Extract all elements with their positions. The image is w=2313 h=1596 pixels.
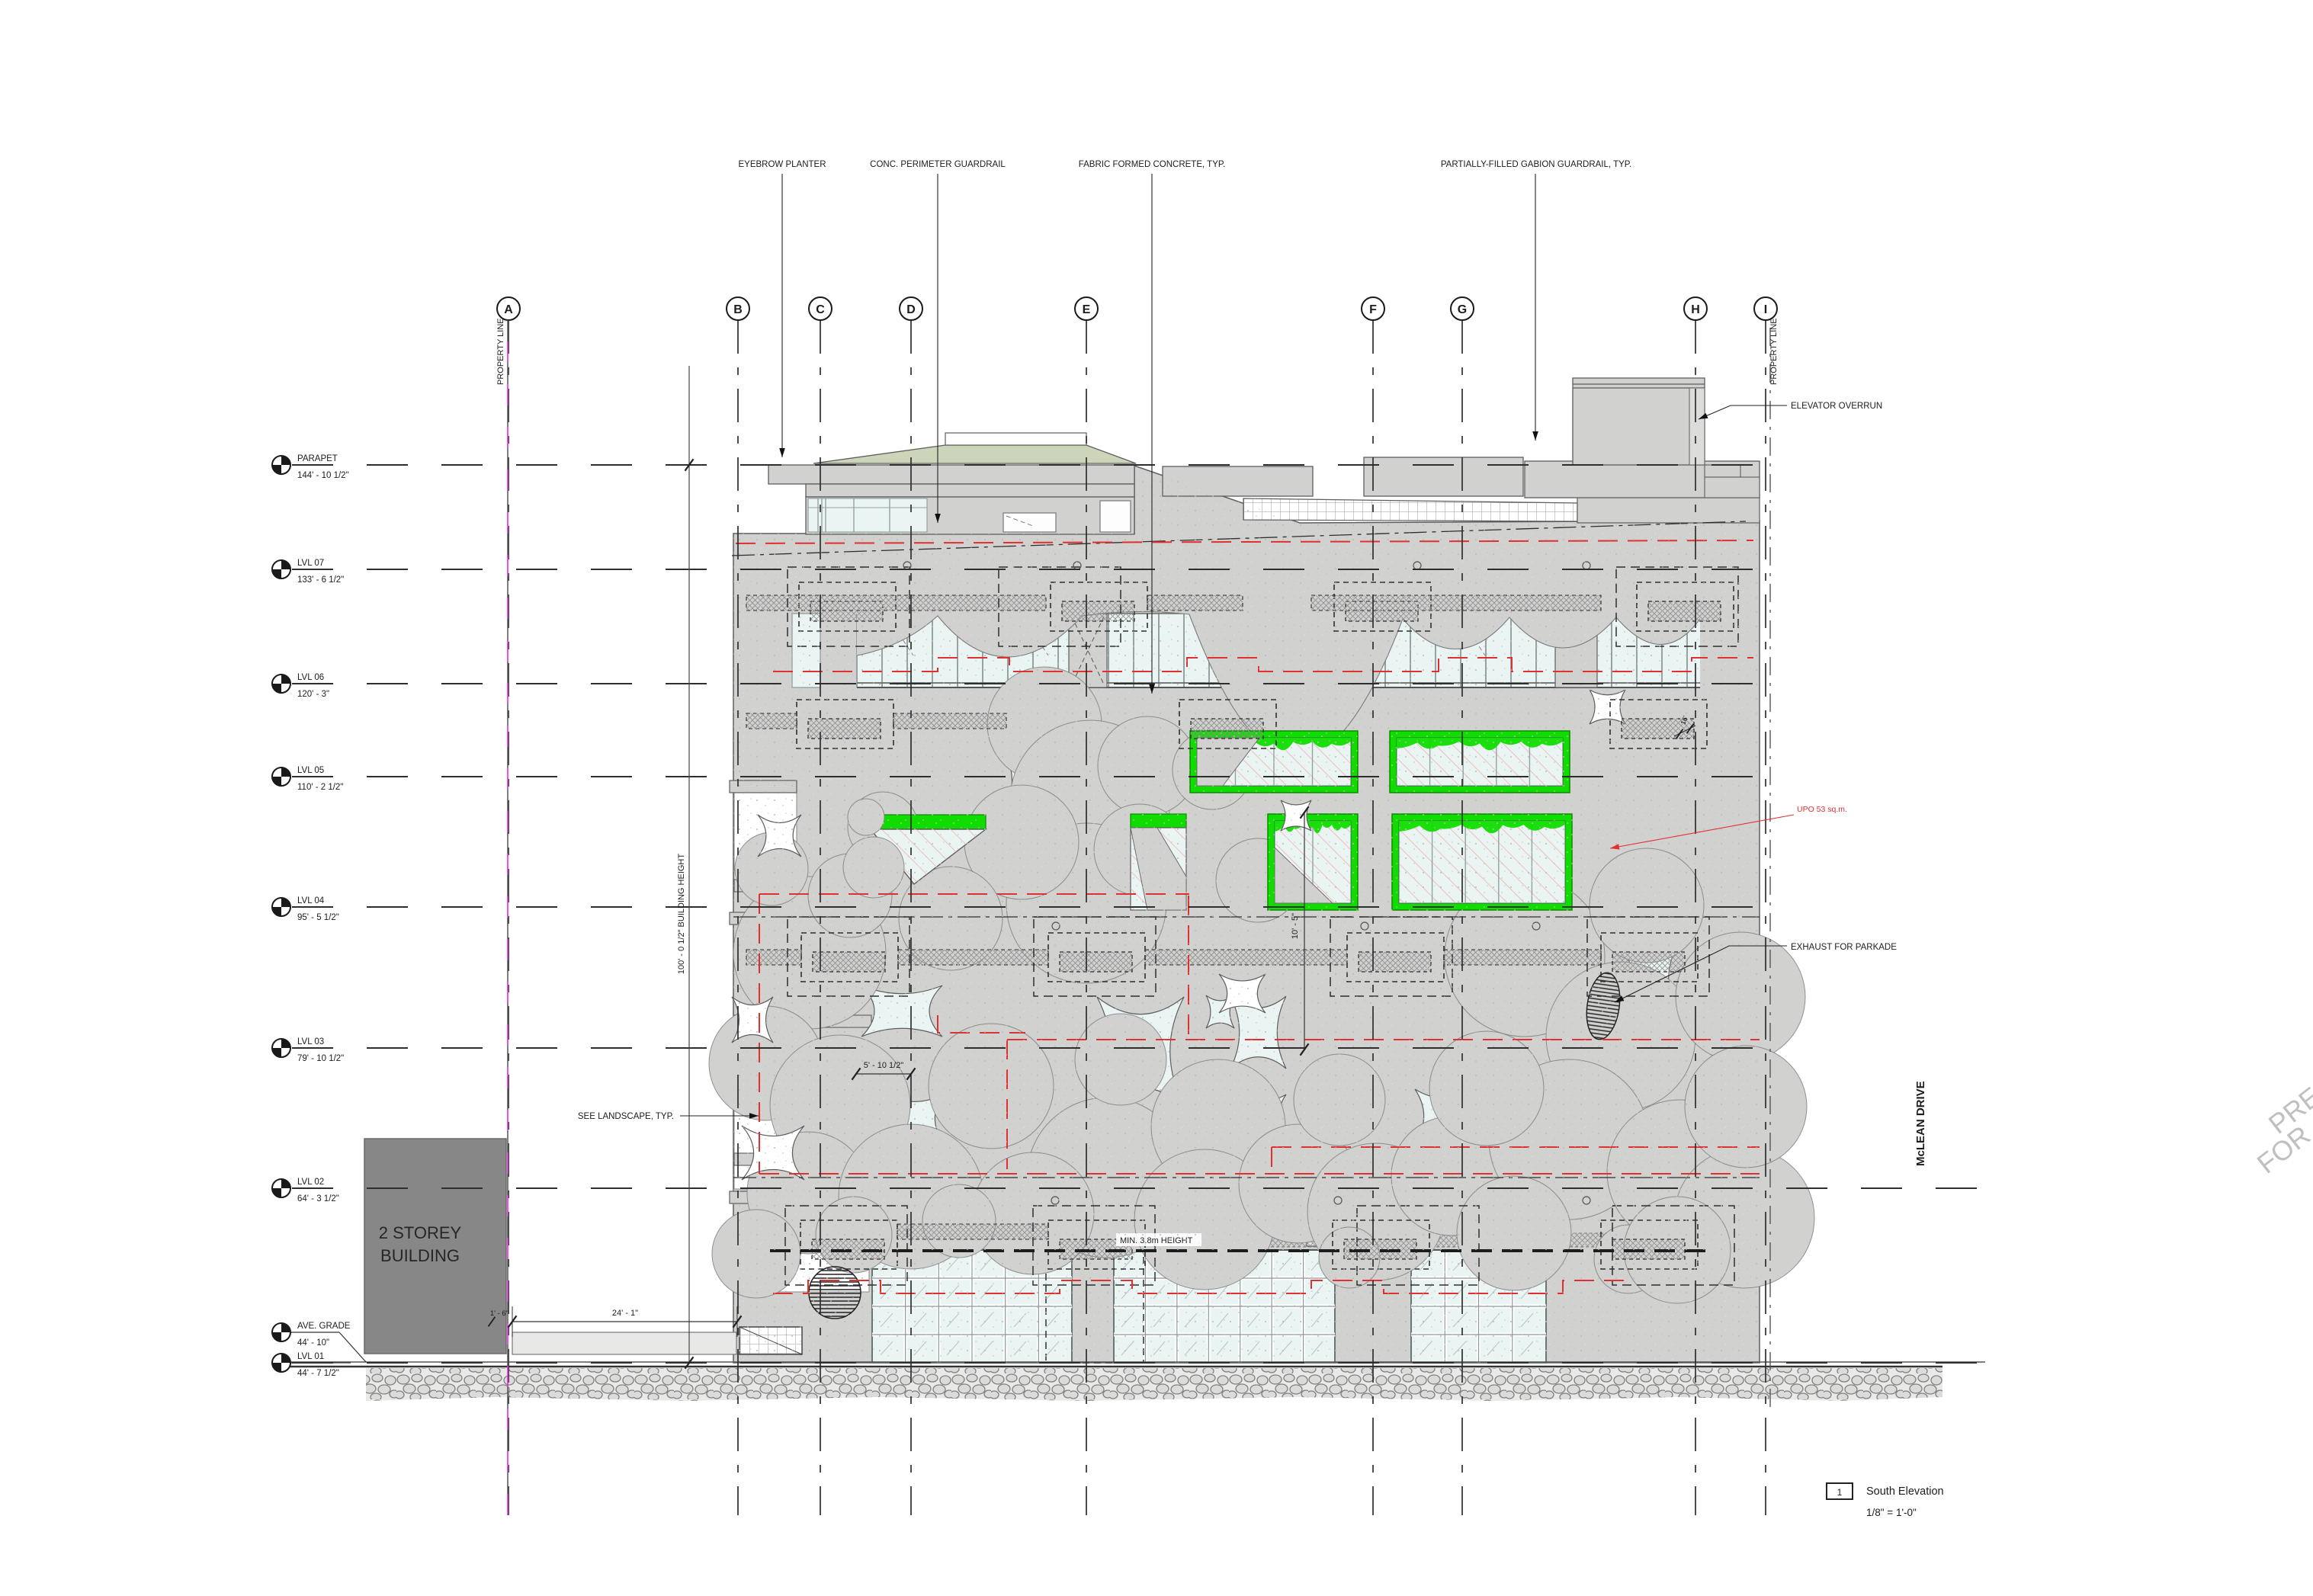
svg-text:G: G [1458,303,1467,316]
svg-text:UPO 53 sq.m.: UPO 53 sq.m. [1797,805,1847,814]
svg-text:LVL 07: LVL 07 [297,559,324,568]
svg-text:1: 1 [1837,1487,1843,1498]
svg-text:LVL 02: LVL 02 [297,1178,324,1187]
svg-text:44' - 7 1/2": 44' - 7 1/2" [297,1369,339,1378]
svg-text:120' - 3": 120' - 3" [297,690,329,699]
svg-text:PARTIALLY-FILLED GABION GUARDR: PARTIALLY-FILLED GABION GUARDRAIL, TYP. [1441,160,1631,169]
svg-text:South Elevation: South Elevation [1866,1485,1944,1498]
svg-text:D: D [906,303,916,316]
svg-text:C: C [816,303,825,316]
svg-text:F: F [1369,303,1377,316]
svg-text:100' - 0 1/2" BUILDING HEIGHT: 100' - 0 1/2" BUILDING HEIGHT [677,854,686,975]
svg-text:PROPERTY LINE: PROPERTY LINE [1769,318,1779,385]
svg-text:24' - 1": 24' - 1" [612,1309,638,1318]
svg-text:PARAPET: PARAPET [297,454,338,463]
svg-text:ELEVATOR OVERRUN: ELEVATOR OVERRUN [1791,402,1882,411]
svg-text:64' - 3 1/2": 64' - 3 1/2" [297,1194,339,1203]
svg-text:110' - 2 1/2": 110' - 2 1/2" [297,783,343,792]
svg-text:133' - 6 1/2": 133' - 6 1/2" [297,575,344,585]
svg-text:McLEAN DRIVE: McLEAN DRIVE [1914,1081,1927,1166]
svg-text:BUILDING: BUILDING [380,1246,460,1265]
svg-text:EYEBROW PLANTER: EYEBROW PLANTER [738,160,826,169]
svg-text:I: I [1764,303,1767,316]
svg-text:FABRIC FORMED CONCRETE, TYP.: FABRIC FORMED CONCRETE, TYP. [1079,160,1226,169]
svg-text:PROPERTY LINE: PROPERTY LINE [496,318,505,385]
svg-text:AVE. GRADE: AVE. GRADE [297,1322,351,1331]
svg-text:79' - 10 1/2": 79' - 10 1/2" [297,1054,344,1063]
svg-text:CONC. PERIMETER GUARDRAIL: CONC. PERIMETER GUARDRAIL [870,160,1006,169]
svg-text:1/8" = 1'-0": 1/8" = 1'-0" [1866,1507,1917,1518]
svg-text:1' - 6": 1' - 6" [490,1309,508,1318]
svg-text:LVL 04: LVL 04 [297,896,325,905]
svg-text:44' - 10": 44' - 10" [297,1338,329,1348]
svg-text:5' - 10 1/2": 5' - 10 1/2" [864,1061,904,1070]
svg-text:10' - 5": 10' - 5" [1291,913,1300,939]
svg-text:A: A [504,303,513,316]
svg-text:E: E [1083,303,1091,316]
svg-text:2 STOREY: 2 STOREY [379,1223,462,1242]
svg-text:H: H [1691,303,1700,316]
svg-text:LVL 05: LVL 05 [297,766,324,775]
svg-text:95' - 5 1/2": 95' - 5 1/2" [297,913,339,922]
svg-text:LVL 03: LVL 03 [297,1037,324,1046]
svg-text:LVL 06: LVL 06 [297,673,324,682]
svg-text:SEE LANDSCAPE, TYP.: SEE LANDSCAPE, TYP. [578,1112,674,1121]
svg-text:144' - 10 1/2": 144' - 10 1/2" [297,471,349,480]
svg-text:EXHAUST FOR PARKADE: EXHAUST FOR PARKADE [1791,943,1897,952]
svg-text:B: B [733,303,743,316]
svg-text:LVL 01: LVL 01 [297,1352,324,1361]
